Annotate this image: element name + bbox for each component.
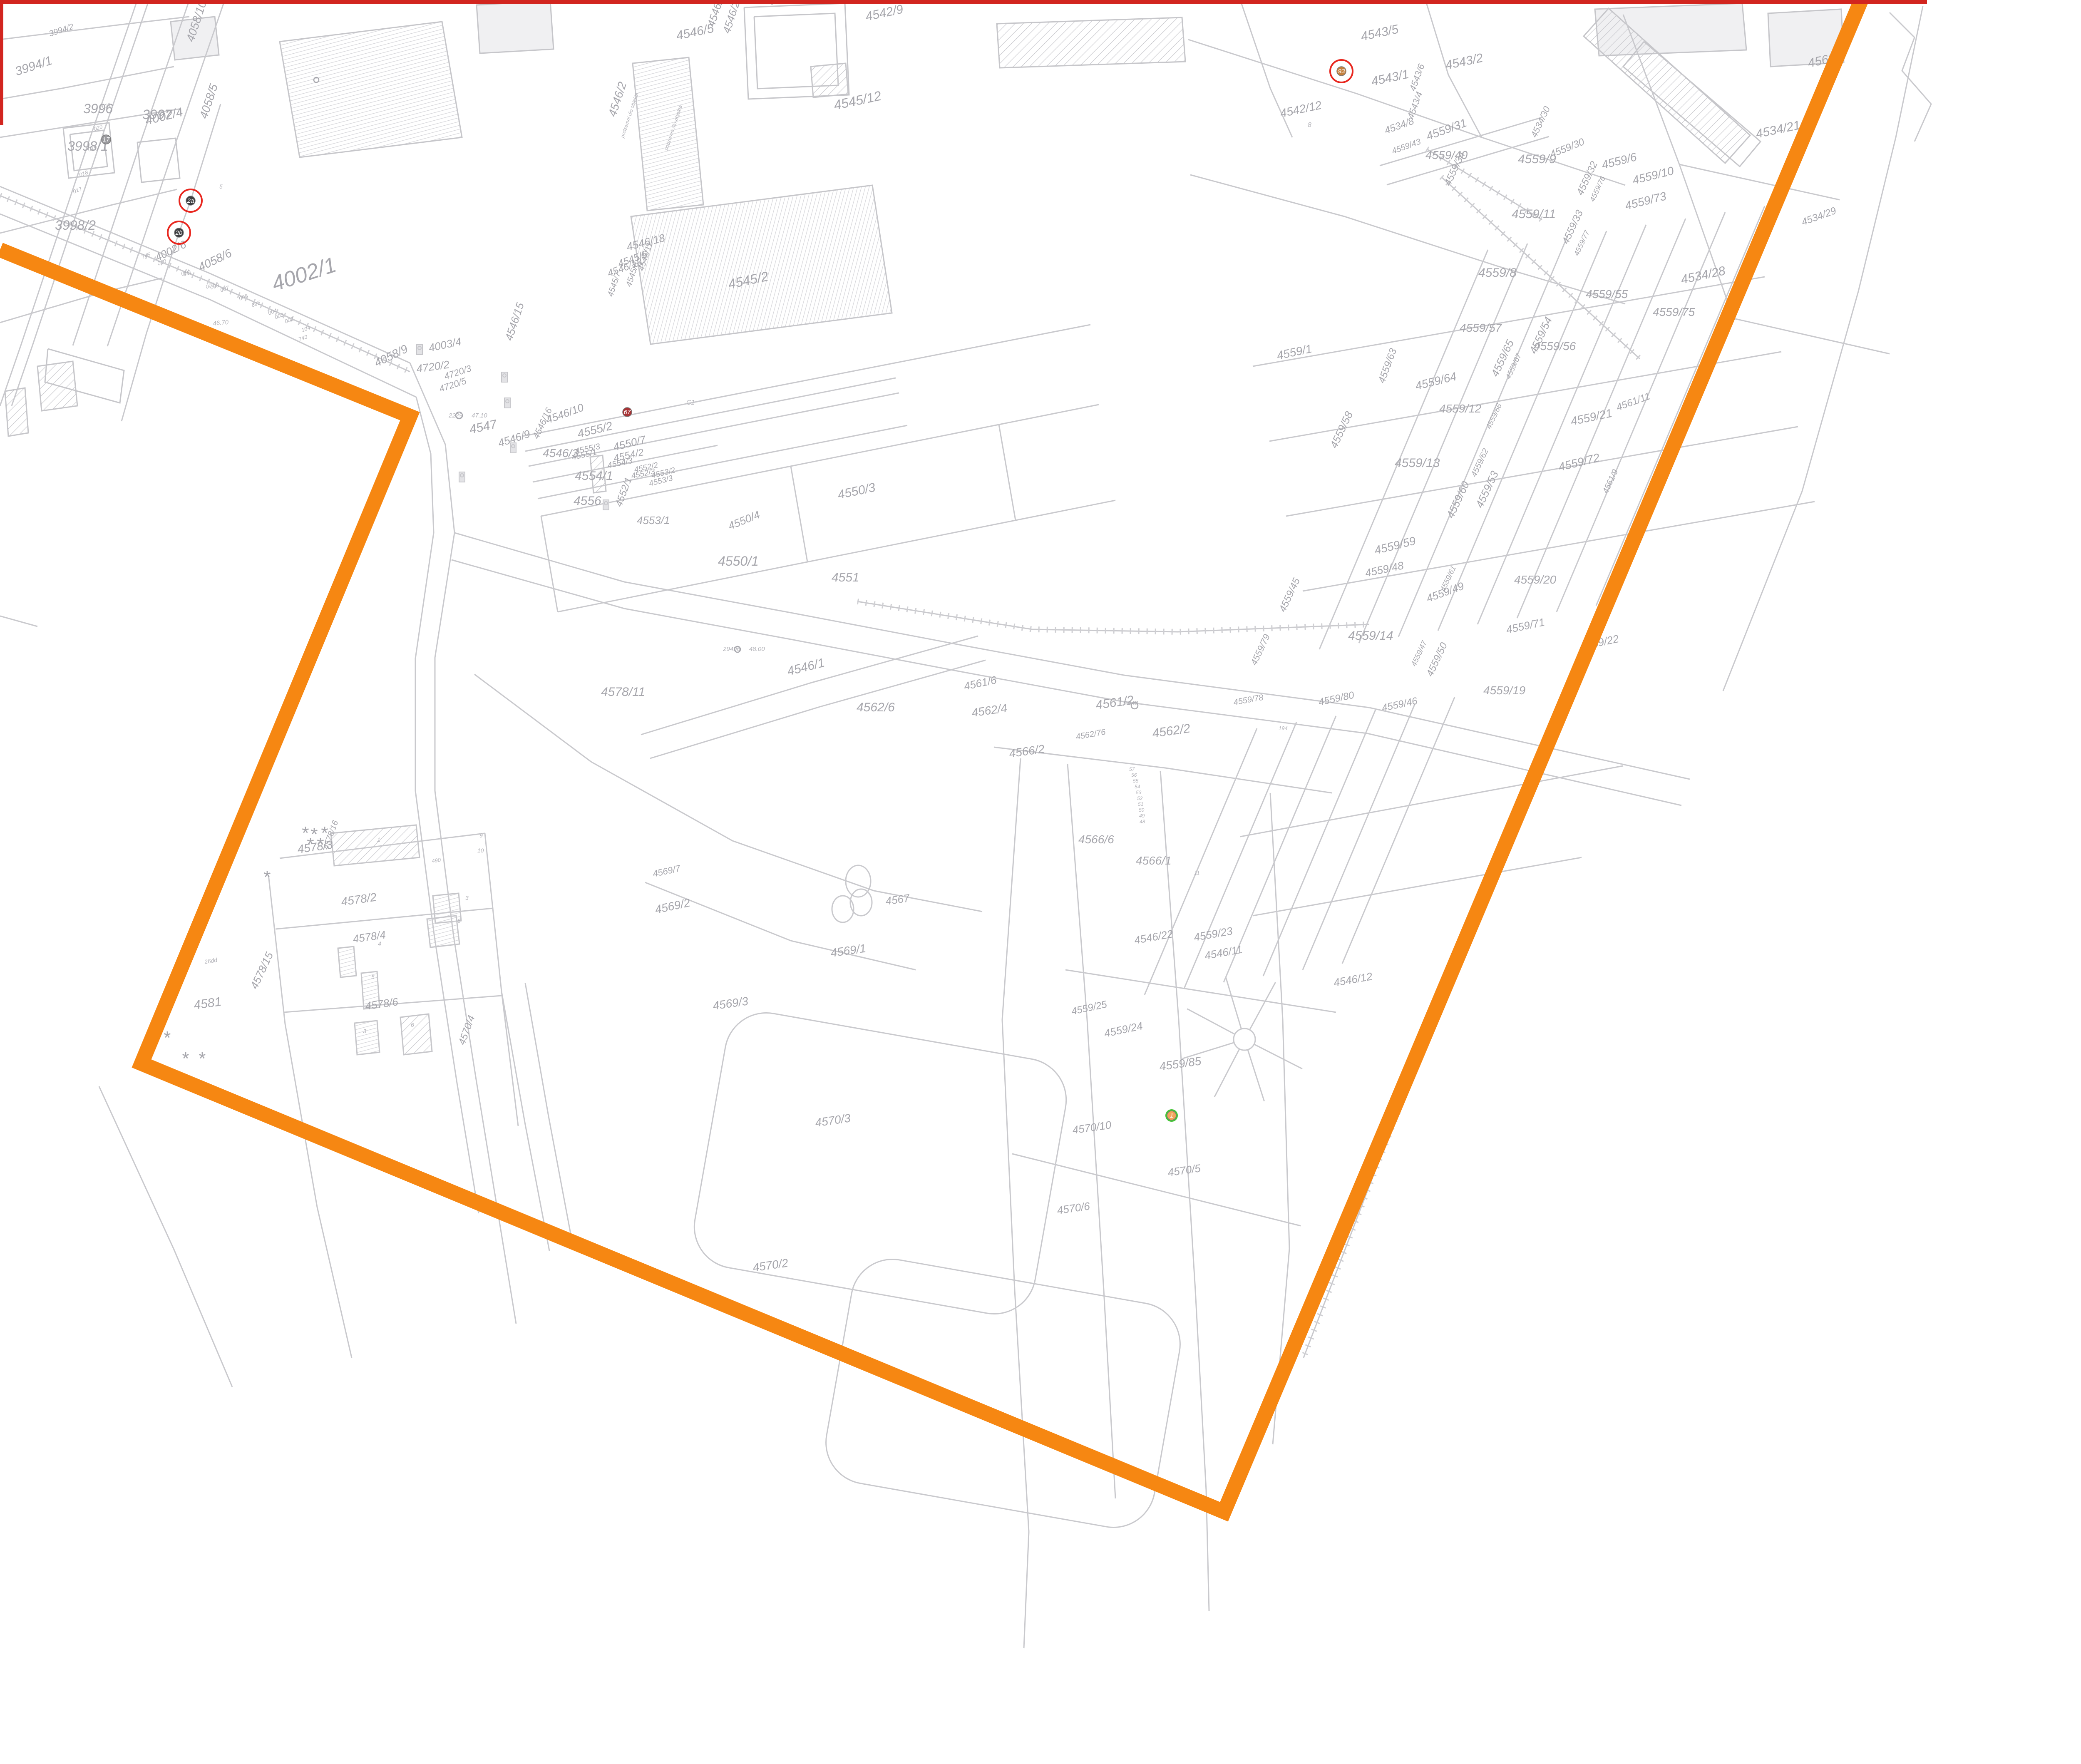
parcel-label: 3	[465, 894, 469, 901]
parcel-label: 9	[479, 832, 483, 839]
parcel-label: 50	[1139, 807, 1145, 813]
parcel-label: 4578/4	[352, 928, 387, 945]
parcel-label: 5	[219, 183, 223, 190]
parcel-label: 49	[1139, 813, 1145, 819]
parcel-line	[1240, 766, 1623, 837]
parcel-label: 4570/3	[815, 1111, 852, 1129]
parcel-label: 53	[1136, 790, 1142, 795]
parcel-label: 4553/1	[637, 514, 670, 527]
parcel-label: 4559/43	[1391, 137, 1422, 156]
parcel-label: 4566/1	[1136, 854, 1172, 867]
parcel-label: 4559/21	[1569, 407, 1613, 428]
parcel-label: 4570/6	[1056, 1200, 1091, 1217]
tank-icon	[832, 896, 854, 922]
parcel-line	[522, 325, 1090, 436]
parcel-label: 4559/60	[1444, 479, 1472, 520]
parcel-label: 6	[457, 917, 461, 924]
parcel-label: 3994/1	[13, 54, 54, 79]
hatched-building	[811, 63, 848, 97]
parcel-line	[1342, 697, 1455, 964]
parcel-label: 4552/1	[613, 476, 634, 508]
parcel-line	[645, 882, 916, 970]
parcel-label: 8	[1308, 122, 1311, 129]
parcel-line	[1263, 710, 1376, 976]
parcel-label: 4559/8	[1478, 266, 1517, 280]
hatched-building	[331, 825, 420, 866]
parcel-label: 4003/4	[427, 335, 462, 354]
tank-icon	[846, 865, 871, 897]
sun-ray	[1249, 982, 1275, 1030]
parcel-label: 4559/6	[1600, 150, 1638, 171]
marker-label: 1	[1170, 1112, 1173, 1119]
parcel-label: 4578/15	[248, 950, 276, 991]
parcel-label: 51	[1138, 801, 1143, 807]
parcel-label: 4554/3	[606, 456, 633, 470]
hatched-building	[355, 1021, 380, 1055]
parcel-label: 4559/11	[1512, 207, 1556, 221]
cadastral-map-svg: ********** 4002/13994/23994/139963997399…	[0, 0, 2081, 1764]
parcel-label: 4547	[468, 417, 499, 436]
marker-label: 17	[103, 136, 110, 143]
parcel-label: 4562/4	[971, 701, 1008, 719]
parcel-label: 4559/75	[1653, 306, 1695, 318]
parcel-label: 4559/73	[1624, 189, 1668, 212]
parcel-line	[1679, 164, 1840, 200]
parcel-label: 52	[1137, 795, 1143, 801]
parcel-label: 4554/1	[575, 469, 613, 483]
parcel-number-labels: 4002/13994/23994/1399639973998/13998/240…	[13, 0, 1838, 1274]
parcel-label: 4559/85	[1159, 1054, 1202, 1073]
parcel-label: 4559/46	[1381, 695, 1419, 714]
parcel-label: 4566/2	[1008, 742, 1046, 760]
marker-label: 67	[624, 409, 631, 416]
parcel-label: 4543/2	[1444, 51, 1485, 72]
parcel-label: 4559/24	[1103, 1019, 1144, 1040]
parcel-label: 56	[1131, 772, 1137, 778]
parcel-label: 4566/6	[1078, 833, 1114, 846]
tree-icon: *	[163, 1028, 171, 1048]
parcel-line	[791, 466, 807, 562]
parcel-label: 4569/2	[654, 896, 692, 916]
parcel-label: 47.10	[472, 412, 487, 419]
parcel-label: 4561/9	[1601, 468, 1620, 495]
parcel-line	[1286, 427, 1798, 516]
parcel-label: 4534/28	[1680, 264, 1727, 287]
parcel-label: 4559/59	[1373, 534, 1417, 557]
parcel-label: 4559/63	[1376, 347, 1399, 385]
parcel-label: 4058/6	[196, 246, 234, 274]
parcel-label: 2948	[1124, 700, 1138, 707]
sun-ray	[1187, 1009, 1235, 1034]
parcel-label: 4534/29	[1800, 205, 1838, 228]
parcel-label: 6	[411, 1021, 414, 1028]
fence-line	[857, 601, 1369, 632]
parcel-label: 4556	[574, 494, 601, 508]
parcel-label: 57	[1129, 766, 1135, 772]
parcel-label: 4561/11	[1615, 390, 1652, 413]
parcel-label: 4	[378, 940, 381, 947]
parcel-label: 4546/12	[1333, 970, 1373, 989]
parcel-line	[452, 560, 1367, 733]
map-viewport: ********** 4002/13994/23994/139963997399…	[0, 0, 2081, 1764]
parcel-label: 4546/11	[1204, 943, 1244, 962]
building-outline	[137, 138, 180, 182]
parcel-line	[1012, 1154, 1301, 1226]
parcel-label: 4559/25	[1070, 999, 1108, 1017]
parcel-label: 4546/1	[786, 656, 826, 678]
rounded-parcel	[688, 1006, 1073, 1321]
parcel-label: 4559/30	[1548, 136, 1586, 160]
parcel-label: 4559/20	[1514, 573, 1557, 586]
parcel-label: 194	[1279, 725, 1288, 731]
parcel-label: 4551	[832, 571, 859, 584]
parcel-label: 4546/2	[606, 80, 629, 118]
parcel-line	[99, 1086, 232, 1387]
tree-icon: *	[263, 867, 271, 887]
hatched-building	[280, 22, 462, 157]
parcel-label: 11	[1194, 870, 1200, 876]
parcel-line	[485, 833, 518, 1126]
parcel-line	[1160, 771, 1206, 1490]
parcel-label: 4550/1	[718, 554, 759, 569]
parcel-label: 46.70	[213, 319, 229, 327]
parcel-label: 745	[141, 251, 151, 260]
parcel-label: 4534/21	[1755, 118, 1802, 141]
tree-icon: *	[181, 1048, 189, 1069]
parcel-label: 4559/23	[1193, 924, 1234, 944]
parcel-label: 4546/22	[1133, 927, 1174, 947]
parcel-label: 4559/55	[1586, 288, 1628, 301]
parcel-label: 4570/4	[456, 1014, 477, 1046]
parcel-line	[1190, 175, 1625, 304]
sun-ray	[1226, 977, 1241, 1029]
hatched-building	[997, 17, 1185, 68]
hatched-building	[400, 1014, 432, 1055]
parcel-label: 4546/15	[502, 301, 526, 342]
parcel-label: 4562/76	[1075, 728, 1107, 742]
parcel-label: 4559/78	[1233, 693, 1264, 707]
hatched-building	[5, 388, 28, 436]
parcel-label: 2229	[448, 412, 463, 419]
parcel-label: 4543/1	[1370, 67, 1411, 88]
parcel-label: 4562/2	[1151, 721, 1191, 740]
parcel-label: 48.00	[749, 646, 765, 653]
sun-ray	[1248, 1050, 1264, 1101]
parcel-label: 29496	[723, 646, 740, 653]
parcel-label: 4570/5	[1167, 1162, 1202, 1179]
parcel-label: 4559/13	[1395, 456, 1440, 470]
parcel-label: 4559/79	[1249, 632, 1272, 667]
parcel-label: 26dd	[204, 957, 219, 966]
parcel-label: 55	[1133, 778, 1139, 784]
parcel-label: 4578/11	[601, 685, 645, 699]
parcel-label: 4559/19	[1483, 684, 1525, 697]
building	[477, 1, 554, 53]
parcel-line	[541, 516, 558, 612]
hatched-building	[338, 947, 356, 977]
sun-ray	[1214, 1049, 1239, 1097]
parcel-label: 4569/3	[712, 994, 750, 1012]
parcel-label: 3994/2	[48, 22, 75, 39]
parcel-label: 54	[1135, 784, 1140, 790]
parcel-line	[641, 636, 978, 735]
parcel-label: 4534/30	[1529, 104, 1552, 139]
parcel-label: 4550/3	[837, 480, 877, 502]
parcel-label: 4542/12	[1279, 98, 1323, 119]
parcel-label: 4002/1	[269, 253, 339, 296]
parcel-label: 5	[371, 974, 375, 980]
parcel-label: 007	[219, 284, 230, 293]
parcel-line	[525, 983, 572, 1242]
parcel-label: 4559/12	[1439, 402, 1482, 415]
sun-ray	[1254, 1044, 1302, 1069]
parcel-label: 4542/9	[864, 2, 905, 23]
parcel-label: C1	[686, 399, 695, 406]
parcel-label: 4559/10	[1631, 164, 1675, 187]
parcel-label: 4569/7	[652, 863, 682, 879]
parcel-line	[415, 397, 479, 1213]
parcel-label: 4570/10	[1072, 1118, 1113, 1136]
parcel-label: 4559/71	[1505, 616, 1546, 636]
parcel-line	[0, 0, 137, 406]
parcel-label: 4058/9	[372, 342, 410, 369]
parcel-line	[1733, 318, 1890, 354]
hatched-building	[631, 185, 892, 344]
parcel-label: 4559/57	[1460, 321, 1502, 334]
parcel-line	[999, 425, 1016, 520]
parcel-line	[1253, 857, 1582, 916]
parcel-line	[1890, 12, 1931, 142]
parcel-line	[0, 17, 189, 40]
sun-symbol-icon	[1234, 1029, 1255, 1050]
parcel-label: 743	[298, 333, 308, 343]
parcel-label: 3	[363, 1028, 366, 1034]
parcel-label: 10	[477, 847, 484, 854]
parcel-label: 1	[377, 836, 380, 843]
parcel-label: 4534/8	[1383, 115, 1416, 137]
parcel-label: 3998/2	[55, 218, 96, 233]
parcel-line	[0, 616, 37, 626]
parcel-label: 490	[431, 857, 441, 864]
parcel-label: 48	[1140, 819, 1145, 825]
parcel-label: 4561/6	[963, 673, 998, 693]
parcel-label: 104	[300, 324, 311, 333]
parcel-label: 4581	[193, 995, 222, 1012]
parcel-label: 4559/45	[1277, 576, 1302, 614]
parcel-label: 4578/2	[340, 890, 378, 908]
parcel-line	[1224, 716, 1336, 982]
marker-label: 93	[1338, 68, 1345, 75]
marker-label: 2b	[175, 229, 183, 236]
parcel-label: 4559/50	[1424, 641, 1450, 678]
parcel-line	[474, 674, 982, 912]
parcel-label: 4562/6	[857, 701, 895, 714]
parcel-label: 4559/47	[1409, 639, 1428, 667]
parcel-line	[1438, 231, 1607, 631]
rounded-parcel	[819, 1253, 1187, 1534]
parcel-label: 4559/58	[1327, 409, 1355, 450]
marker-label: 2a	[187, 197, 194, 204]
parcel-label: 4559/14	[1348, 629, 1393, 643]
parcel-line	[525, 378, 896, 451]
parcel-label: 4550/4	[726, 508, 762, 532]
tree-icon: *	[198, 1048, 206, 1069]
parcel-label: 4543/5	[1360, 22, 1400, 43]
parcel-line	[1303, 703, 1415, 970]
parcel-label: 4570/2	[752, 1256, 790, 1274]
parcel-label: 4559/66	[1484, 402, 1503, 430]
parcel-line	[650, 660, 986, 758]
parcel-label: 4543/6	[1407, 62, 1427, 92]
parcel-line	[1024, 1532, 1029, 1648]
